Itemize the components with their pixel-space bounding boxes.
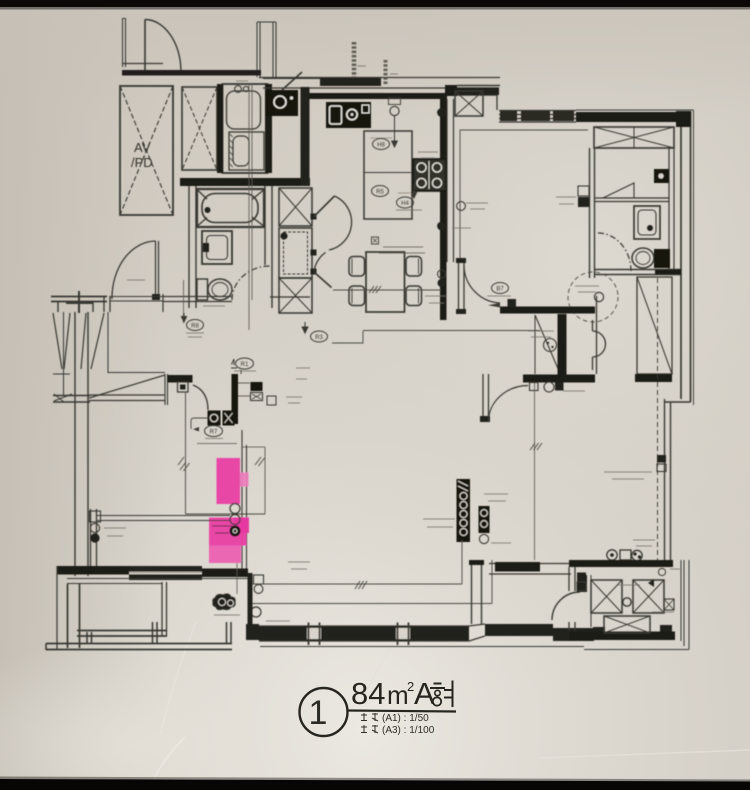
svg-text:(A1) : 1/50: (A1) : 1/50 [382, 713, 429, 724]
svg-text:/PD: /PD [131, 155, 153, 170]
svg-text:H4: H4 [401, 201, 409, 207]
svg-text:A: A [414, 676, 435, 711]
svg-text:H8: H8 [377, 143, 385, 149]
svg-text:R7: R7 [210, 430, 218, 436]
svg-text:m: m [387, 680, 409, 710]
svg-text:(A3) : 1/100: (A3) : 1/100 [382, 725, 435, 736]
svg-text:B7: B7 [496, 287, 504, 293]
svg-text:R8: R8 [191, 324, 199, 330]
svg-text:R5: R5 [376, 190, 384, 196]
svg-text:R1: R1 [241, 362, 249, 368]
svg-text:R3: R3 [315, 335, 323, 341]
svg-text:AV: AV [134, 140, 151, 155]
svg-text:84: 84 [351, 676, 385, 711]
svg-text:1: 1 [309, 694, 328, 732]
